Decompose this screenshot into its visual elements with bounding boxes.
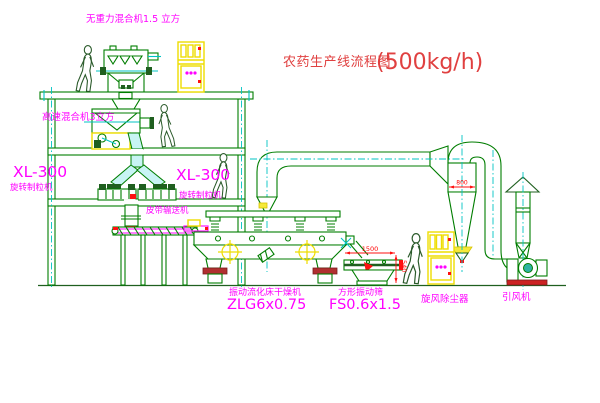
- vibrating-screen: [344, 252, 403, 286]
- worker-ground: [403, 234, 422, 284]
- label-granulator-left-model: XL-300: [13, 163, 67, 181]
- dim-screen-length: 1500: [362, 245, 379, 253]
- induced-draft-fan: [507, 259, 547, 286]
- label-dryer-model: ZLG6x0.75: [227, 297, 306, 313]
- label-gravity-mixer: 无重力混合机1.5 立方: [86, 13, 180, 25]
- dim-screen-height: 540: [400, 260, 408, 272]
- control-cabinet-ground: [428, 232, 454, 284]
- belt-conveyor: [112, 227, 198, 285]
- label-screen-model: FS0.6x1.5: [329, 297, 401, 313]
- worker-second-floor: [159, 105, 175, 147]
- drawing-title: 农药生产线流程图: [283, 55, 391, 70]
- drawing-title-capacity: (500kg/h): [376, 50, 483, 75]
- high-speed-mixer: [84, 99, 154, 149]
- worker-top-floor: [76, 46, 93, 92]
- label-granulator-right-name: 旋转制粒机: [179, 190, 222, 201]
- label-granulator-right-model: XL-300: [176, 166, 230, 184]
- label-granulator-left-name: 旋转制粒机: [10, 182, 53, 193]
- pesticide-production-line-drawing: 农药生产线流程图 (500kg/h) 无重力混合机1.5 立方 高速混合机3立方…: [0, 0, 600, 403]
- gravity-mixer: [96, 46, 161, 99]
- label-cyclone: 旋风除尘器: [421, 293, 469, 305]
- fluid-bed-dryer: [184, 197, 368, 283]
- label-belt-conveyor: 皮带输送机: [146, 205, 189, 216]
- process-flow-diagram: 农药生产线流程图 (500kg/h) 无重力混合机1.5 立方 高速混合机3立方…: [0, 0, 600, 403]
- control-cabinet-top: [178, 42, 204, 92]
- dim-cyclone-inlet: 800: [456, 180, 468, 187]
- label-high-speed-mixer: 高速混合机3立方: [42, 111, 115, 123]
- label-fan: 引风机: [502, 291, 531, 303]
